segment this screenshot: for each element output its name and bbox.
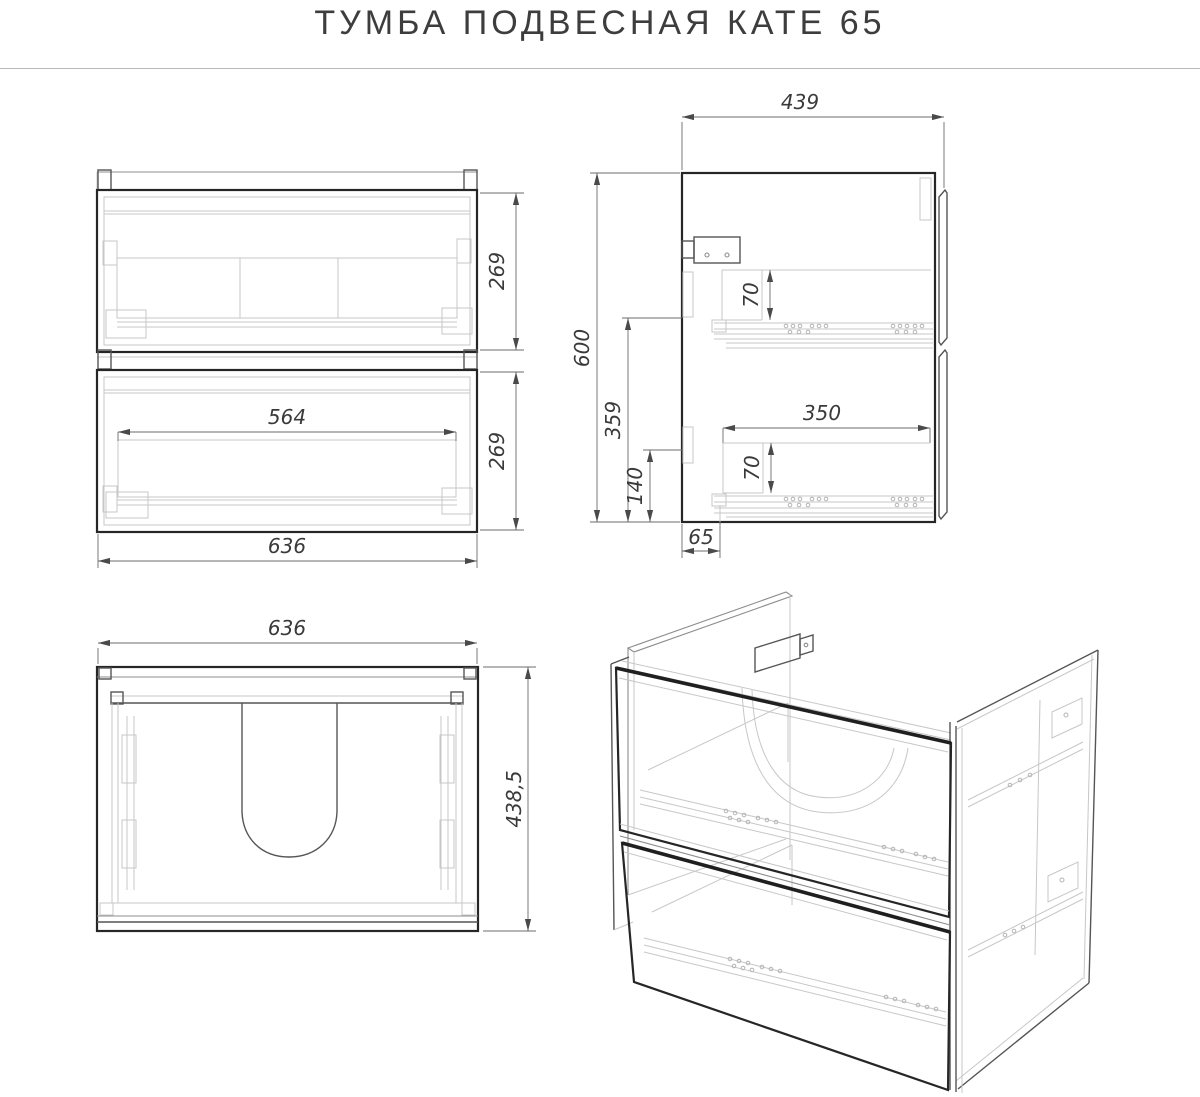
front-view: 269 269 564 636 [97,170,524,568]
side-view: 70 350 [570,90,947,558]
dim-side-lower-drawer: 70 [740,455,764,480]
top-view: 636 438,5 [97,616,536,931]
top-sink-cutout [242,703,337,857]
technical-drawing: 269 269 564 636 [0,0,1200,1097]
top-dimensions: 636 438,5 [98,616,536,931]
dim-side-depth: 439 [781,90,819,114]
top-drawer-walls [100,703,475,915]
iso-back-panel [628,592,813,895]
side-dimensions: 439 600 359 140 65 [570,90,944,558]
front-upper-drawer [97,190,477,352]
dim-side-lower-depth: 350 [803,401,841,425]
dim-side-upper-drawer: 70 [739,282,763,307]
top-body [97,667,478,931]
isometric-view [611,592,1098,1093]
dim-side-lower-level: 140 [623,467,647,505]
iso-right-panel [950,650,1098,1093]
side-upper-drawer: 70 [712,270,933,348]
dim-front-inner-width: 564 [268,405,306,429]
dim-side-back-offset: 65 [688,525,713,549]
iso-left-panel [611,657,633,930]
side-front-panels [939,190,947,519]
iso-lower-drawer-box [644,845,1083,1026]
dim-front-total-width: 636 [268,534,306,558]
dim-side-upper-level: 359 [601,401,625,439]
dim-top-depth: 438,5 [502,770,526,827]
front-dimensions: 269 269 564 636 [98,193,524,568]
side-wall-bracket [682,237,740,263]
dim-top-width: 636 [268,616,306,640]
drawing-page: ТУМБА ПОДВЕСНАЯ КАТЕ 65 [0,0,1200,1097]
dim-side-height: 600 [570,329,594,367]
front-lower-drawer [97,370,477,532]
iso-upper-drawer-box [640,688,1083,876]
front-top-rail [97,170,477,190]
dim-front-upper-height: 269 [485,252,509,290]
dim-front-lower-height: 269 [485,432,509,470]
side-lower-drawer: 350 70 [712,401,933,517]
